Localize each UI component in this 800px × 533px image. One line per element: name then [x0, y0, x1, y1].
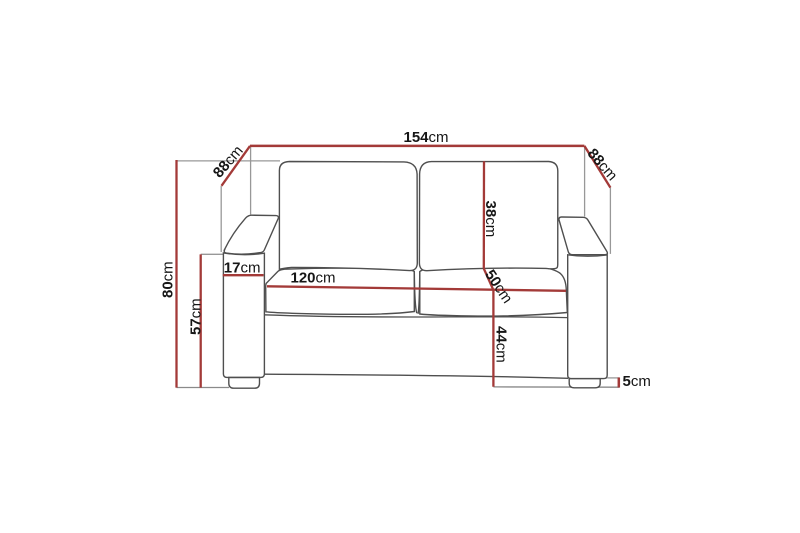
- svg-text:154cm: 154cm: [404, 129, 449, 146]
- svg-text:120cm: 120cm: [291, 270, 336, 287]
- svg-text:57cm: 57cm: [188, 298, 205, 335]
- svg-text:80cm: 80cm: [160, 261, 177, 298]
- svg-text:44cm: 44cm: [493, 326, 510, 363]
- svg-text:38cm: 38cm: [482, 201, 499, 238]
- svg-text:5cm: 5cm: [623, 373, 651, 390]
- svg-text:17cm: 17cm: [224, 259, 261, 276]
